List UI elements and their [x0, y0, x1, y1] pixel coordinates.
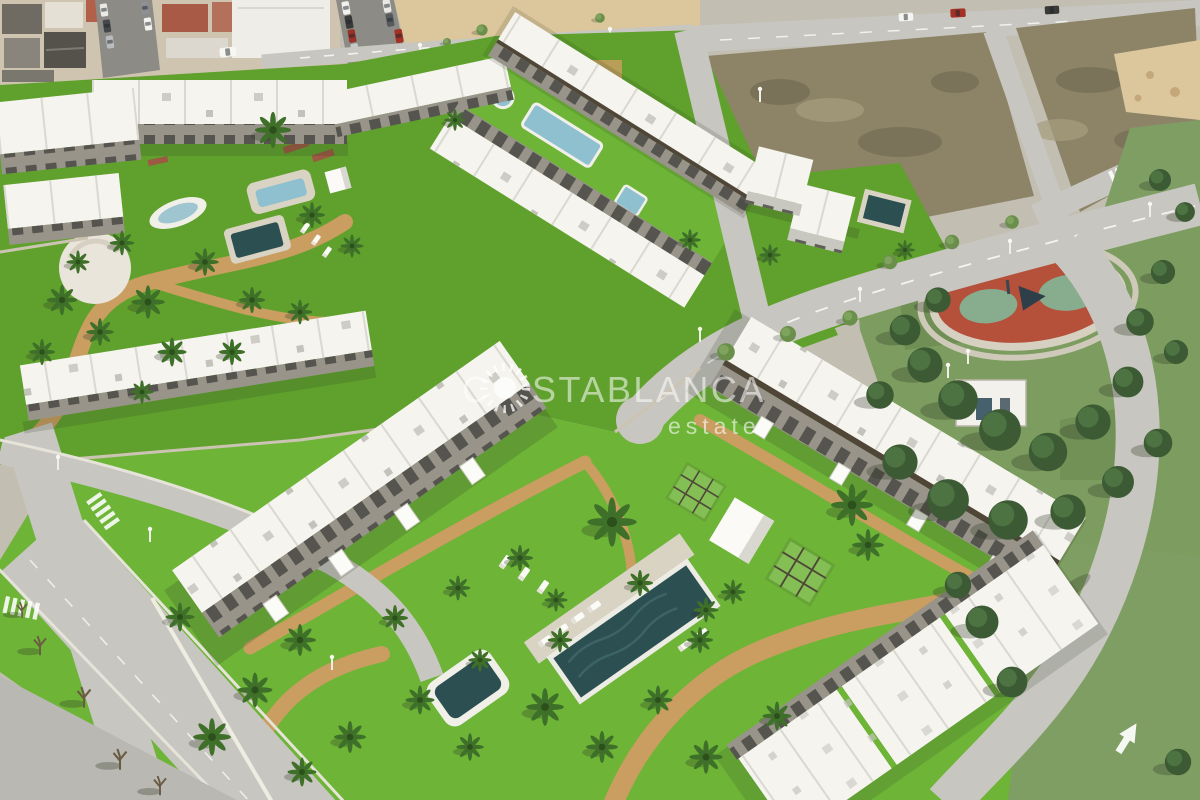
- watermark-brand-prefix: C: [462, 369, 491, 410]
- watermark-subtitle: estate: [668, 413, 761, 439]
- white-van: [219, 46, 237, 57]
- red-car: [950, 8, 966, 17]
- watermark-brand-suffix: STABLANCA: [532, 369, 766, 410]
- sand-patch: [1114, 40, 1200, 120]
- aerial-development-render: C STABLANCA estate: [0, 0, 1200, 800]
- scene-canvas: C STABLANCA estate: [0, 0, 1200, 800]
